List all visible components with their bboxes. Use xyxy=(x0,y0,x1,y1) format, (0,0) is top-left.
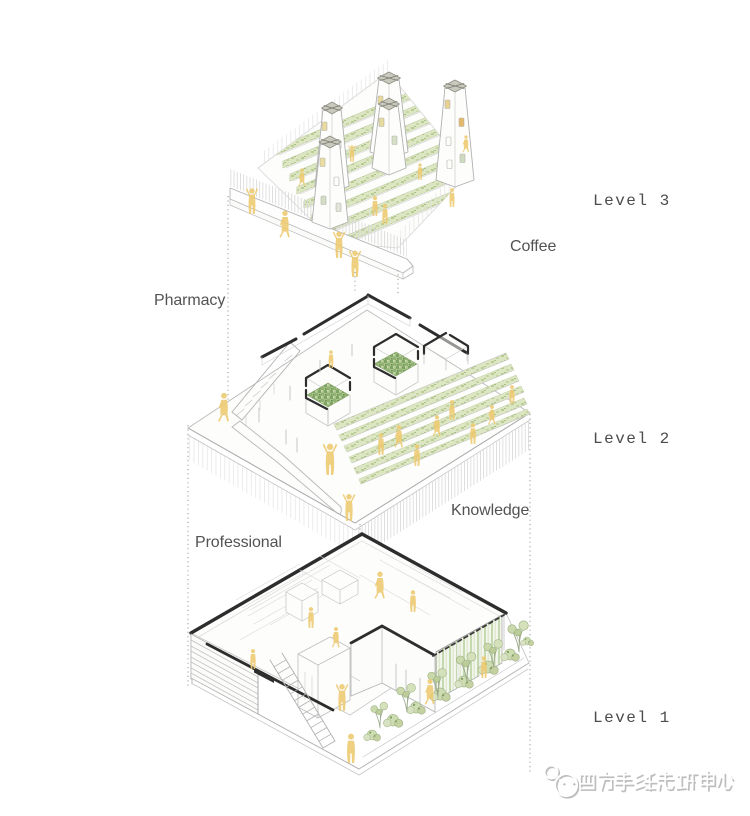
svg-text:Pharmacy: Pharmacy xyxy=(154,292,225,309)
svg-text:Knowledge: Knowledge xyxy=(451,502,529,519)
svg-text:Professional: Professional xyxy=(195,534,282,551)
svg-text:Level 2: Level 2 xyxy=(593,430,671,448)
svg-text:Coffee: Coffee xyxy=(510,238,556,255)
svg-text:Level 3: Level 3 xyxy=(593,192,671,210)
svg-text:Level 1: Level 1 xyxy=(593,709,671,727)
